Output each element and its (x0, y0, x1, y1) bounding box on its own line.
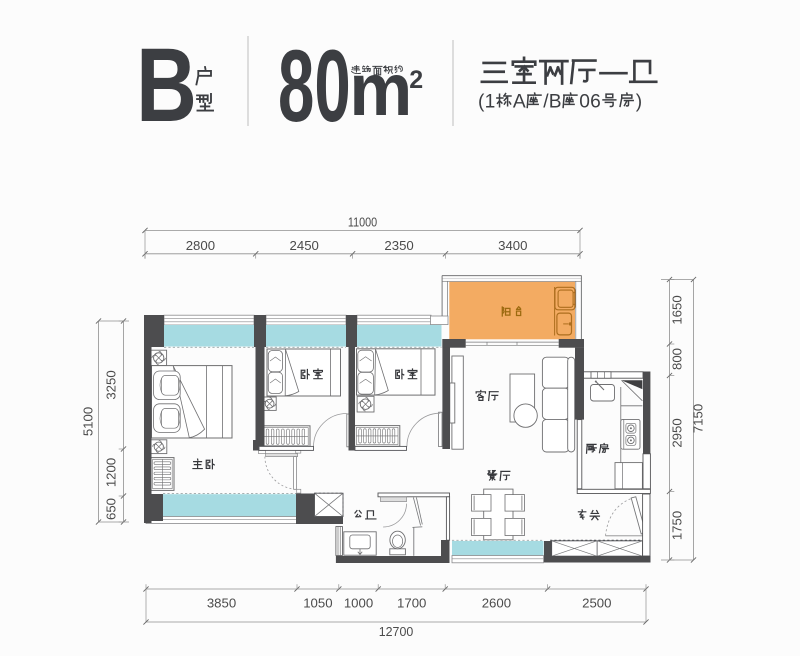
svg-text:0: 0 (579, 92, 590, 113)
svg-text:2450: 2450 (290, 238, 319, 253)
svg-text:7150: 7150 (691, 404, 706, 433)
svg-text:1050: 1050 (303, 596, 332, 611)
svg-text:3400: 3400 (498, 238, 527, 253)
svg-text:800: 800 (670, 348, 685, 370)
svg-text:3850: 3850 (207, 596, 236, 611)
svg-text:2950: 2950 (670, 418, 685, 447)
svg-text:3250: 3250 (104, 370, 119, 399)
svg-text:A: A (513, 92, 526, 113)
svg-text:2800: 2800 (186, 238, 215, 253)
svg-text:1750: 1750 (670, 511, 685, 540)
svg-text:1200: 1200 (104, 458, 119, 487)
svg-text:12700: 12700 (379, 624, 413, 639)
svg-text:1650: 1650 (670, 295, 685, 324)
svg-text:2350: 2350 (384, 238, 413, 253)
svg-text:m: m (349, 49, 412, 132)
svg-text:): ) (636, 92, 642, 113)
svg-text:B: B (549, 92, 562, 113)
svg-text:6: 6 (590, 92, 601, 113)
svg-text:80: 80 (278, 31, 351, 144)
svg-text:1700: 1700 (397, 596, 426, 611)
svg-text:2: 2 (409, 66, 423, 94)
svg-text:B: B (136, 27, 197, 144)
svg-text:1000: 1000 (344, 596, 373, 611)
svg-text:5100: 5100 (81, 407, 96, 436)
svg-text:650: 650 (104, 498, 119, 520)
svg-text:11000: 11000 (348, 214, 378, 229)
svg-text:1: 1 (485, 92, 496, 113)
svg-text:2600: 2600 (482, 596, 511, 611)
svg-text:2500: 2500 (582, 596, 611, 611)
